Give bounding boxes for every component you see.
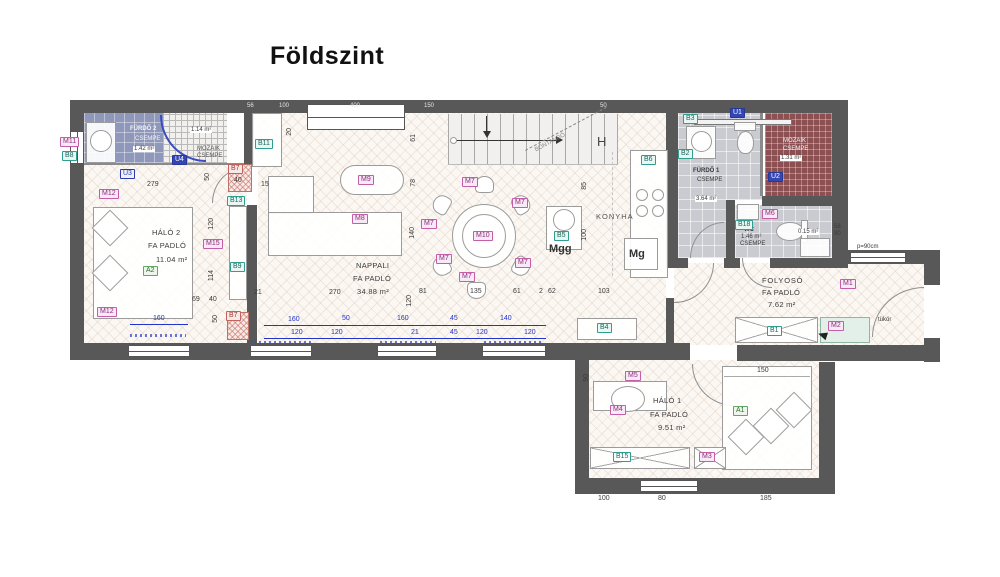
wall-segment xyxy=(832,113,848,263)
tag-m15: M15 xyxy=(203,239,223,249)
shower-area: 1.31 m² xyxy=(780,155,802,161)
tag-m7: M7 xyxy=(512,198,528,208)
dim: 114 xyxy=(208,270,216,281)
room-area: 9.51 m² xyxy=(658,423,686,432)
tag-m7: M7 xyxy=(421,219,437,229)
room-name: FÜRDŐ 1 xyxy=(693,168,719,174)
dim: 140 xyxy=(500,315,512,323)
tag-m9: M9 xyxy=(358,175,374,185)
dim-line xyxy=(264,325,546,326)
dim: 61 xyxy=(513,288,521,296)
sofa xyxy=(268,212,402,256)
dim: 40 xyxy=(234,177,242,185)
shelf-b9 xyxy=(229,206,247,300)
sofa-chaise xyxy=(268,176,314,214)
tag-m1: M1 xyxy=(840,279,856,289)
stair-start-marker xyxy=(450,137,457,144)
stove-burner-icon xyxy=(636,189,648,201)
toilet-icon xyxy=(737,131,754,154)
tag-b3: B3 xyxy=(683,114,698,124)
wall-segment xyxy=(924,338,940,362)
room-area: 1.42 m² xyxy=(133,146,155,152)
dim: 160 xyxy=(288,316,300,324)
dim: 90 xyxy=(583,374,591,382)
dim: 270 xyxy=(329,289,341,297)
stair-h-label: H xyxy=(597,134,607,149)
tag-b11: B11 xyxy=(255,139,273,149)
room-area: 7.62 m² xyxy=(768,300,796,309)
dim: 21 xyxy=(411,329,419,337)
stove-burner-icon xyxy=(652,189,664,201)
parapet-note: p=90cm xyxy=(857,244,879,250)
floor-plan: Földszint BON xyxy=(0,0,1000,577)
dim: 100 xyxy=(598,495,610,503)
dim: 400 xyxy=(350,103,360,110)
washbasin-icon xyxy=(691,131,712,152)
tag-m7: M7 xyxy=(462,177,478,187)
tag-m10: M10 xyxy=(473,231,493,241)
dim: 50 xyxy=(212,315,220,323)
dim: 279 xyxy=(147,181,159,189)
niche xyxy=(800,238,830,257)
room-floor: FA PADLÓ xyxy=(650,410,688,419)
radiator-mark xyxy=(130,334,186,337)
window xyxy=(850,252,906,263)
room-floor: FA PADLÓ xyxy=(148,241,186,250)
tag-u4: U4 xyxy=(172,155,187,165)
cabinet-b15 xyxy=(590,447,690,469)
wall-segment xyxy=(575,478,835,494)
shower-tile-label: MOZAIK xyxy=(197,146,220,152)
room-area: 1.46 m² xyxy=(741,234,761,240)
tag-b4: B4 xyxy=(597,323,612,333)
stair-down-arrow-icon xyxy=(483,131,491,138)
dim: 120 xyxy=(331,329,343,337)
niche-area: 0.15 m² xyxy=(797,229,819,235)
dim: 45 xyxy=(450,315,458,323)
room-floor: CSEMPE xyxy=(697,177,722,183)
wall-segment xyxy=(924,250,940,285)
tag-u3: U3 xyxy=(120,169,135,179)
window-glass-line xyxy=(483,351,545,352)
washing-machine-drum-icon xyxy=(553,209,575,231)
tag-m5: M5 xyxy=(625,371,641,381)
tag-m2: M2 xyxy=(828,321,844,331)
wall-segment xyxy=(724,258,740,268)
wall-divider xyxy=(84,163,244,165)
tag-b9: B9 xyxy=(230,262,245,272)
stove-burner-icon xyxy=(652,205,664,217)
wall-segment xyxy=(575,343,589,493)
stove-burner-icon xyxy=(636,205,648,217)
wall-divider xyxy=(760,113,763,196)
radiator-mark xyxy=(254,341,312,344)
shower-tile-label: MOZAIK xyxy=(783,138,806,144)
room-area: 3.64 m² xyxy=(695,196,717,202)
tag-b15: B15 xyxy=(613,452,631,462)
tag-u1: U1 xyxy=(730,108,745,118)
wall-segment xyxy=(819,362,835,494)
tag-b1: B1 xyxy=(767,326,782,336)
dim: 2 xyxy=(539,288,543,296)
tag-m12: M12 xyxy=(99,189,119,199)
dim: 15 xyxy=(261,181,269,189)
dim: 103 xyxy=(598,288,610,296)
tag-b5: B5 xyxy=(554,231,569,241)
dim: 135 xyxy=(470,288,482,296)
dim: 50 xyxy=(342,315,350,323)
bed-headboard-line xyxy=(724,376,810,377)
dim: 62 xyxy=(548,288,556,296)
toilet-tank xyxy=(734,122,756,131)
tag-m12: M12 xyxy=(97,307,117,317)
dim: 45 xyxy=(450,329,458,337)
room-area: 11.04 m² xyxy=(156,255,187,264)
tag-b18: B18 xyxy=(735,220,753,230)
window-glass-line xyxy=(129,351,189,352)
tag-m4: M4 xyxy=(610,405,626,415)
dining-chair xyxy=(475,176,494,193)
room-name: KONYHA xyxy=(596,212,634,221)
shower-tile-label: CSEMPE xyxy=(197,153,222,159)
washbasin-icon xyxy=(90,130,112,152)
dim: 100 xyxy=(279,103,289,110)
tag-a1: A1 xyxy=(733,406,748,416)
radiator-mark xyxy=(380,341,436,344)
tag-b7: B7 xyxy=(226,311,241,321)
window xyxy=(482,345,546,357)
tag-b13: B13 xyxy=(227,196,245,206)
dim: 69 xyxy=(192,296,200,304)
mirror-note: tükör xyxy=(878,317,891,323)
window-glass-line xyxy=(641,486,697,487)
dim-line xyxy=(130,324,188,325)
window xyxy=(250,345,312,357)
dim: 120 xyxy=(524,329,536,337)
window xyxy=(128,345,190,357)
dim: 78 xyxy=(410,179,418,187)
dim: 150 xyxy=(757,367,769,375)
dim: 100 xyxy=(581,229,589,241)
tag-m8: M8 xyxy=(352,214,368,224)
stair-entry-line xyxy=(486,116,487,132)
tag-m3: M3 xyxy=(699,452,715,462)
dim: 21 xyxy=(254,289,262,297)
tag-b7: B7 xyxy=(228,164,243,174)
appliance-label-mgg: Mgg xyxy=(549,243,572,255)
wall-segment xyxy=(726,200,735,258)
room-name: FÜRDŐ 2 xyxy=(130,126,156,132)
dim-line xyxy=(264,338,546,339)
dim: 120 xyxy=(291,329,303,337)
dim: 81 xyxy=(419,288,427,296)
wall-segment xyxy=(666,298,674,343)
tag-m6: M6 xyxy=(762,209,778,219)
window xyxy=(377,345,437,357)
dim: 20 xyxy=(286,128,294,136)
plan-title: Földszint xyxy=(270,42,384,71)
room-floor: CSEMPE xyxy=(135,136,160,142)
dim: 50 xyxy=(204,173,212,181)
tag-m7: M7 xyxy=(459,272,475,282)
tag-b6: B6 xyxy=(641,155,656,165)
wall-segment xyxy=(666,100,848,113)
room-name: NAPPALI xyxy=(356,261,389,270)
room-name: FOLYOSÓ xyxy=(762,276,803,285)
dim: 120 xyxy=(476,329,488,337)
dim: 80 xyxy=(658,495,666,503)
tag-u2: U2 xyxy=(768,172,783,182)
dim: 50 xyxy=(600,103,607,110)
dim: 120 xyxy=(406,295,414,307)
dim: 120 xyxy=(208,218,216,230)
dim: 185 xyxy=(760,495,772,503)
dim: 40 xyxy=(209,296,217,304)
room-floor: CSEMPE xyxy=(740,241,765,247)
dim: 61 xyxy=(410,134,418,142)
window-glass-line xyxy=(378,351,436,352)
dim: 56 xyxy=(247,103,254,110)
room-area: 34.88 m² xyxy=(357,287,389,296)
tag-m7: M7 xyxy=(436,254,452,264)
dim: 85 xyxy=(581,182,589,190)
window-glass-line xyxy=(851,257,905,258)
dim: 160 xyxy=(397,315,409,323)
dim: 150 xyxy=(424,103,434,110)
window xyxy=(640,480,698,492)
room-floor: FA PADLÓ xyxy=(353,274,391,283)
washbasin-wc xyxy=(737,204,759,220)
shower-area: 1.14 m² xyxy=(190,127,212,133)
dim: 90 xyxy=(834,230,841,238)
tag-m11: M11 xyxy=(60,137,79,147)
window-glass-line xyxy=(251,351,311,352)
appliance-label-mg: Mg xyxy=(629,248,645,260)
dim: 160 xyxy=(153,315,165,323)
window-glass-line xyxy=(308,117,404,118)
wall-segment xyxy=(770,258,848,268)
radiator-mark xyxy=(484,341,544,344)
room-name: HÁLÓ 1 xyxy=(653,396,681,405)
wall-segment xyxy=(737,345,940,361)
tag-a2: A2 xyxy=(143,266,158,276)
tag-b8: B8 xyxy=(62,151,77,161)
shower-tile-label: CSEMPE xyxy=(783,146,808,152)
dim: 140 xyxy=(409,227,417,239)
room-floor: FA PADLÓ xyxy=(762,288,800,297)
tag-m7: M7 xyxy=(515,258,531,268)
tag-b2: B2 xyxy=(678,149,693,159)
room-name: HÁLÓ 2 xyxy=(152,228,180,237)
